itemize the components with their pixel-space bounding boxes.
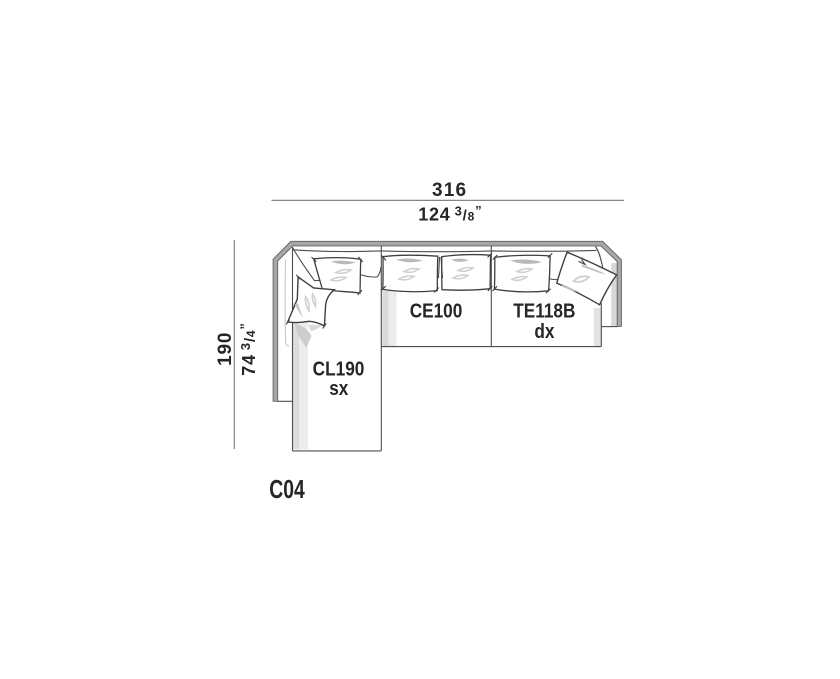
svg-text:190: 190 — [215, 332, 236, 366]
svg-text:TE118B: TE118B — [513, 300, 575, 323]
svg-text:316: 316 — [432, 180, 467, 201]
svg-text:CE100: CE100 — [410, 300, 463, 323]
svg-text:1243/8”: 1243/8” — [418, 203, 482, 225]
svg-text:sx: sx — [329, 378, 349, 401]
svg-text:743/4”: 743/4” — [238, 322, 260, 375]
svg-text:dx: dx — [534, 321, 555, 344]
svg-text:C04: C04 — [269, 474, 305, 503]
